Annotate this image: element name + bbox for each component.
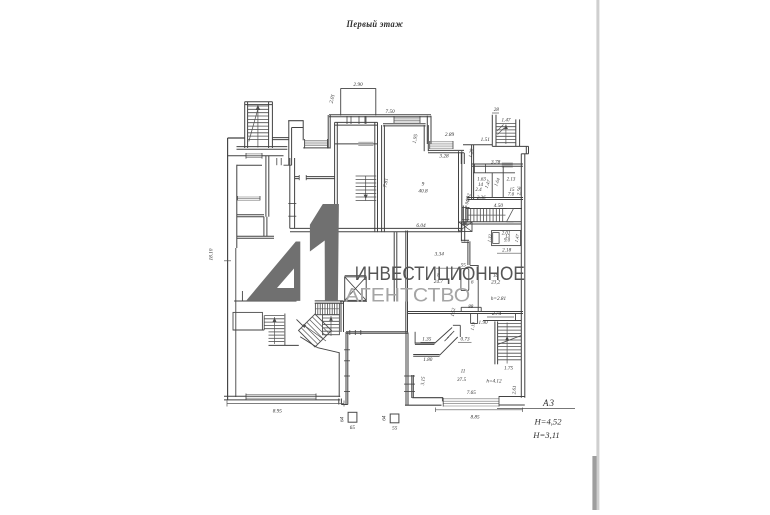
svg-text:2.18: 2.18 — [502, 248, 511, 254]
svg-text:ИНВЕСТИЦИОННОЕ: ИНВЕСТИЦИОННОЕ — [355, 263, 525, 285]
svg-text:9: 9 — [422, 182, 425, 188]
svg-text:37.5: 37.5 — [457, 377, 466, 383]
svg-text:1.75: 1.75 — [504, 365, 513, 371]
svg-text:h=4.12: h=4.12 — [486, 378, 502, 385]
svg-text:3.28: 3.28 — [439, 154, 449, 160]
svg-text:18.10: 18.10 — [209, 248, 215, 260]
svg-text:1.80: 1.80 — [423, 357, 432, 363]
svg-text:8.85: 8.85 — [470, 415, 479, 421]
svg-text:7.50: 7.50 — [385, 109, 395, 115]
svg-text:2.61: 2.61 — [512, 385, 518, 394]
svg-text:9.0: 9.0 — [504, 239, 511, 244]
svg-text:55: 55 — [392, 426, 398, 432]
svg-text:8.95: 8.95 — [273, 408, 282, 414]
svg-text:H=3,11: H=3,11 — [532, 430, 559, 440]
svg-text:АГЕНТСТВО: АГЕНТСТВО — [345, 284, 470, 306]
svg-text:3.34: 3.34 — [435, 251, 445, 257]
svg-text:65: 65 — [350, 425, 356, 431]
svg-text:h=2.81: h=2.81 — [491, 296, 507, 302]
svg-text:2.74: 2.74 — [492, 310, 501, 317]
svg-text:2.90: 2.90 — [353, 82, 363, 88]
svg-text:2.89: 2.89 — [445, 132, 455, 138]
svg-text:64: 64 — [339, 417, 345, 423]
svg-text:64: 64 — [382, 415, 388, 421]
svg-text:11: 11 — [461, 368, 466, 374]
svg-text:1.63: 1.63 — [477, 177, 486, 182]
svg-text:40.8: 40.8 — [418, 189, 428, 195]
svg-text:2.13: 2.13 — [507, 177, 516, 182]
svg-text:А3: А3 — [542, 398, 555, 408]
svg-text:2.4: 2.4 — [475, 188, 482, 193]
svg-text:0.73: 0.73 — [460, 336, 469, 342]
svg-text:7.65: 7.65 — [467, 390, 476, 396]
svg-text:28: 28 — [494, 107, 500, 113]
svg-text:1.90: 1.90 — [478, 320, 487, 326]
svg-text:1.47: 1.47 — [502, 117, 511, 123]
svg-text:6.04: 6.04 — [416, 223, 426, 229]
svg-text:4.50: 4.50 — [494, 203, 504, 209]
svg-text:H=4,52: H=4,52 — [533, 417, 562, 427]
svg-text:Первый этаж: Первый этаж — [346, 19, 404, 30]
svg-text:1.35: 1.35 — [422, 336, 431, 342]
svg-text:1.51: 1.51 — [481, 137, 491, 143]
svg-text:2.36: 2.36 — [477, 196, 486, 201]
svg-text:3.15: 3.15 — [421, 376, 427, 386]
svg-text:7.6: 7.6 — [508, 192, 515, 197]
svg-text:2.56: 2.56 — [517, 186, 523, 196]
